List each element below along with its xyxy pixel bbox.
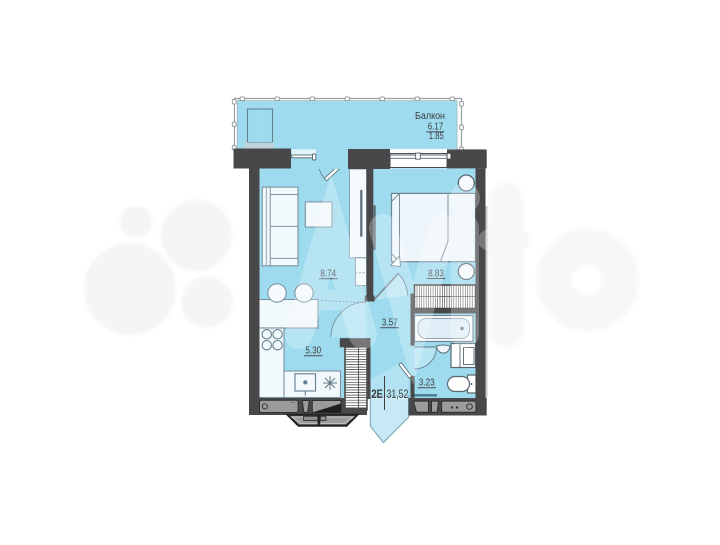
svg-text:3.23: 3.23: [419, 378, 435, 389]
svg-text:Балкон: Балкон: [415, 111, 445, 122]
svg-text:5.30: 5.30: [305, 346, 321, 357]
svg-text:2Е: 2Е: [371, 389, 383, 401]
svg-text:31,52: 31,52: [387, 389, 409, 401]
svg-text:1.85: 1.85: [429, 131, 444, 142]
